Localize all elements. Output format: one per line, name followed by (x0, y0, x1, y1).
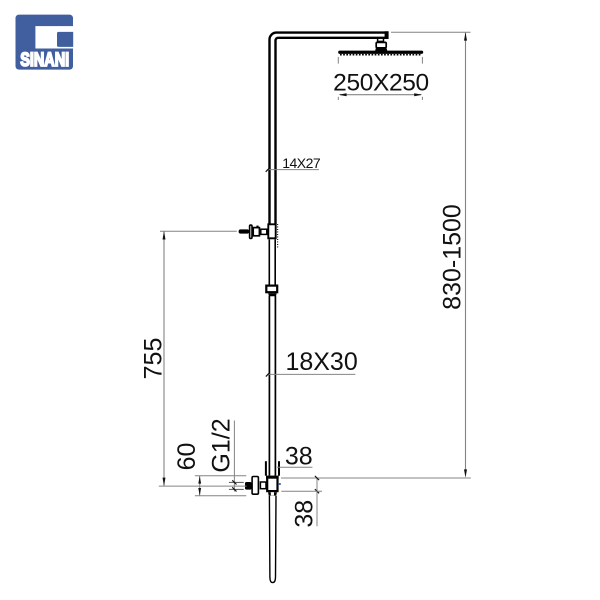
svg-text:38: 38 (285, 443, 313, 471)
svg-text:38: 38 (291, 500, 319, 528)
svg-text:18X30: 18X30 (285, 348, 357, 376)
svg-text:830-1500: 830-1500 (439, 204, 467, 310)
svg-text:250X250: 250X250 (333, 69, 429, 96)
svg-text:G1/2: G1/2 (207, 418, 235, 472)
svg-text:14X27: 14X27 (282, 155, 321, 171)
svg-text:755: 755 (139, 338, 167, 380)
svg-text:SINANI: SINANI (20, 49, 69, 70)
svg-text:60: 60 (173, 443, 201, 471)
